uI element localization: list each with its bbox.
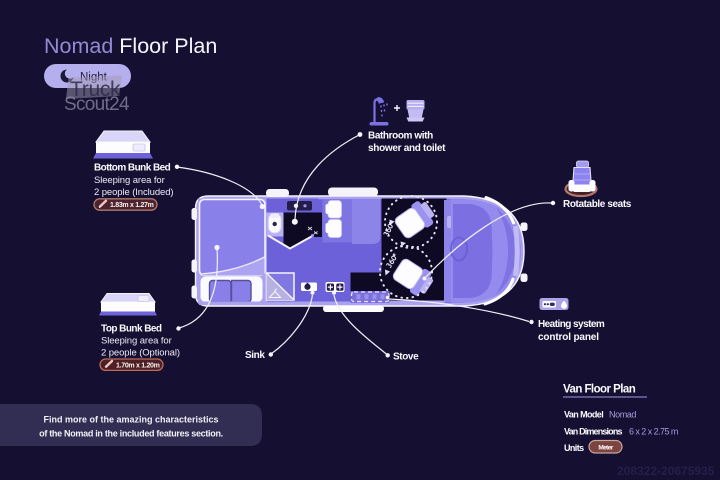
svg-text:Rotatable seats: Rotatable seats [563,199,632,210]
svg-text:Bottom Bunk Bed: Bottom Bunk Bed [94,163,171,174]
svg-text:Van Model: Van Model [564,410,603,420]
svg-text:Van Dimensions: Van Dimensions [564,427,622,437]
svg-text:Scout24: Scout24 [64,94,130,115]
svg-text:Meter: Meter [598,444,613,451]
svg-text:Sink: Sink [245,350,265,361]
svg-text:Sleeping area for: Sleeping area for [101,336,172,347]
svg-text:208322-20675935: 208322-20675935 [617,464,715,478]
svg-text:Bathroom with: Bathroom with [368,131,433,142]
svg-text:Nomad Floor Plan: Nomad Floor Plan [44,34,217,58]
svg-text:shower and toilet: shower and toilet [368,143,446,154]
svg-text:2 people (Included): 2 people (Included) [94,187,173,198]
svg-text:Van Floor Plan: Van Floor Plan [563,384,636,396]
svg-text:Units: Units [564,443,584,453]
svg-text:2 people (Optional): 2 people (Optional) [101,348,180,359]
svg-text:Sleeping area for: Sleeping area for [94,175,165,186]
svg-text:of the Nomad in the included f: of the Nomad in the included features se… [39,429,223,439]
svg-text:Nomad: Nomad [609,410,636,420]
svg-text:Stove: Stove [393,352,419,363]
svg-text:1.70m x 1.20m: 1.70m x 1.20m [116,362,160,369]
svg-text:control panel: control panel [538,332,599,343]
svg-text:Heating system: Heating system [538,319,605,330]
svg-text:Find more of the amazing chara: Find more of the amazing characteristics [43,415,218,425]
svg-text:1.83m x 1.27m: 1.83m x 1.27m [110,202,154,209]
svg-text:Top Bunk Bed: Top Bunk Bed [101,324,162,335]
svg-text:6 x 2 x 2.75 m: 6 x 2 x 2.75 m [629,427,678,437]
